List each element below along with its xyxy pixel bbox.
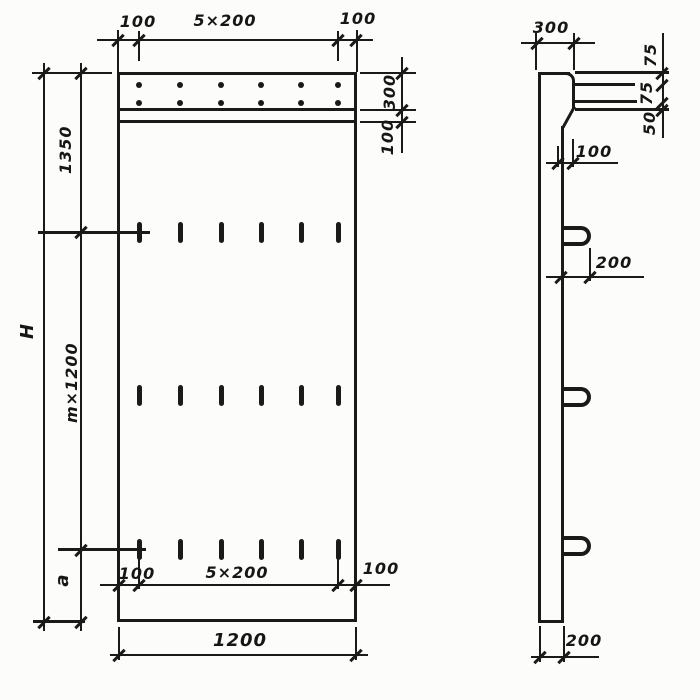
loop-end-mark (219, 539, 224, 560)
drawing-line (110, 654, 368, 656)
dim-bottom-right-margin-label: 100 (359, 560, 403, 578)
loop-end-mark (137, 222, 142, 243)
loop-end-mark (336, 222, 341, 243)
loop-end-mark (336, 539, 341, 560)
anchor-dot (218, 100, 224, 106)
drawing-line (100, 584, 390, 586)
drawing-line (535, 33, 537, 70)
lifting-loop (561, 226, 591, 246)
lifting-loop (561, 536, 591, 556)
drawing-line (573, 100, 637, 103)
anchor-dot (136, 82, 142, 88)
dim-top-thickness-label: 300 (527, 19, 575, 37)
loop-end-mark (219, 385, 224, 406)
loop-end-mark (137, 385, 142, 406)
dim-strip-height-label: 100 (379, 115, 397, 159)
dim-top-left-margin-label: 100 (116, 13, 160, 31)
profile-chamfer (561, 106, 576, 129)
loop-end-mark (259, 539, 264, 560)
dim-loop-extent-label: 200 (592, 254, 636, 272)
drawing-line (38, 231, 150, 234)
dim-ledge-depth-label: 100 (572, 143, 616, 161)
anchor-dot (298, 100, 304, 106)
dim-bottom-spacing-label: 5×200 (200, 564, 274, 582)
anchor-dot (258, 100, 264, 106)
loop-end-mark (178, 385, 183, 406)
drawing-line (118, 108, 355, 111)
anchor-dot (136, 100, 142, 106)
drawing-line (337, 31, 339, 61)
loop-end-mark (259, 385, 264, 406)
drawing-line (538, 620, 564, 623)
drawing-line (575, 83, 635, 86)
loop-end-mark (137, 539, 142, 560)
drawing-line (521, 42, 595, 44)
loop-end-mark (299, 539, 304, 560)
dim-top-spacing-label: 5×200 (188, 12, 262, 30)
dim-1350-label: 1350 (57, 130, 75, 174)
anchor-dot (335, 82, 341, 88)
loop-end-mark (219, 222, 224, 243)
anchor-dot (218, 82, 224, 88)
anchor-dot (177, 82, 183, 88)
drawing-line (538, 72, 541, 622)
loop-end-mark (299, 222, 304, 243)
loop-end-mark (178, 222, 183, 243)
dim-bottom-left-margin-label: 100 (115, 565, 159, 583)
panel-outline (117, 72, 357, 622)
anchor-dot (298, 82, 304, 88)
drawing-line (118, 120, 355, 123)
lifting-loop (561, 387, 591, 407)
profile-top-corner (564, 72, 575, 85)
drawing-line (138, 31, 140, 61)
anchor-dot (335, 100, 341, 106)
dim-total-height-label: H (19, 311, 37, 351)
drawing-sheet: 100 5×200 100 300 100 1350 H m×1200 a 10… (0, 0, 700, 700)
dim-loop-zone-label: m×1200 (63, 343, 81, 423)
loop-end-mark (178, 539, 183, 560)
loop-end-mark (299, 385, 304, 406)
dim-top-right-margin-label: 100 (336, 10, 380, 28)
dim-seg3-label: 50 (641, 101, 659, 145)
dim-bottom-thickness-label: 200 (562, 632, 606, 650)
dim-band-height-label: 300 (381, 70, 399, 114)
drawing-line (58, 548, 146, 551)
loop-end-mark (336, 385, 341, 406)
drawing-line (573, 33, 575, 70)
anchor-dot (258, 82, 264, 88)
anchor-dot (177, 100, 183, 106)
loop-end-mark (259, 222, 264, 243)
drawing-line (43, 63, 45, 631)
dim-overall-width-label: 1200 (203, 632, 277, 650)
dim-bottom-margin-label: a (54, 560, 72, 600)
